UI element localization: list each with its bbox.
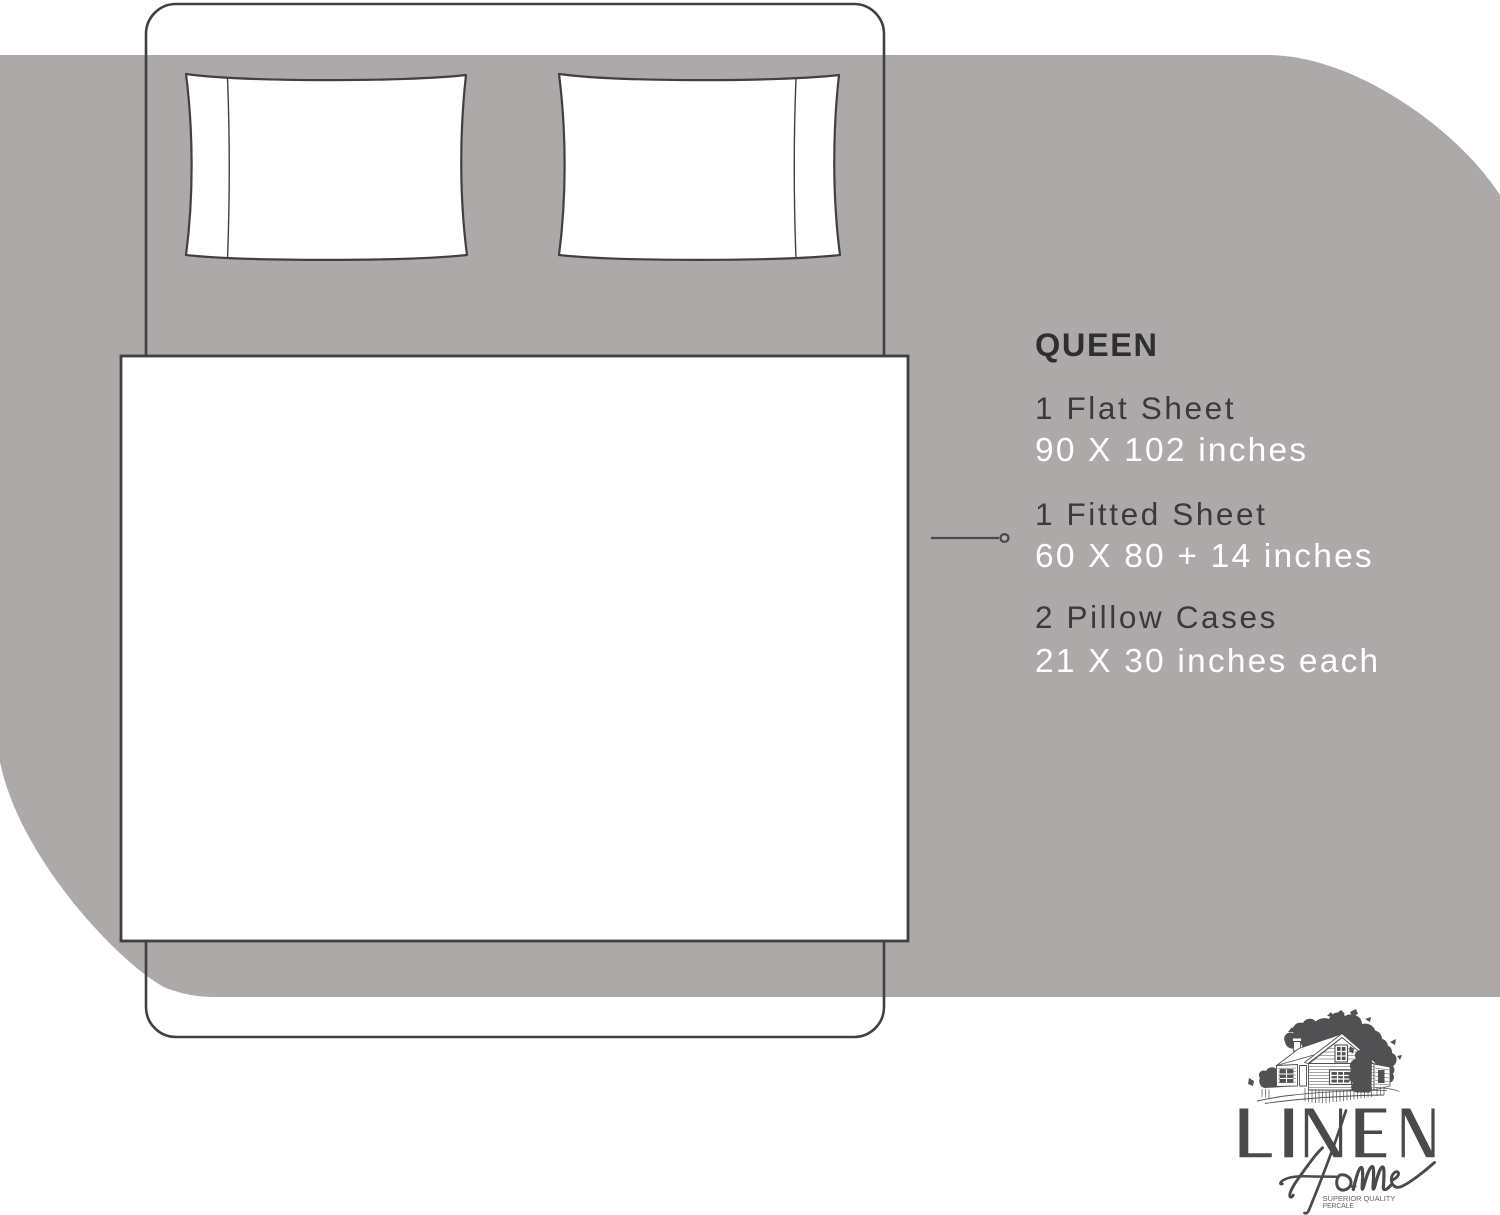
svg-text:PERCALE: PERCALE <box>1323 1201 1354 1210</box>
